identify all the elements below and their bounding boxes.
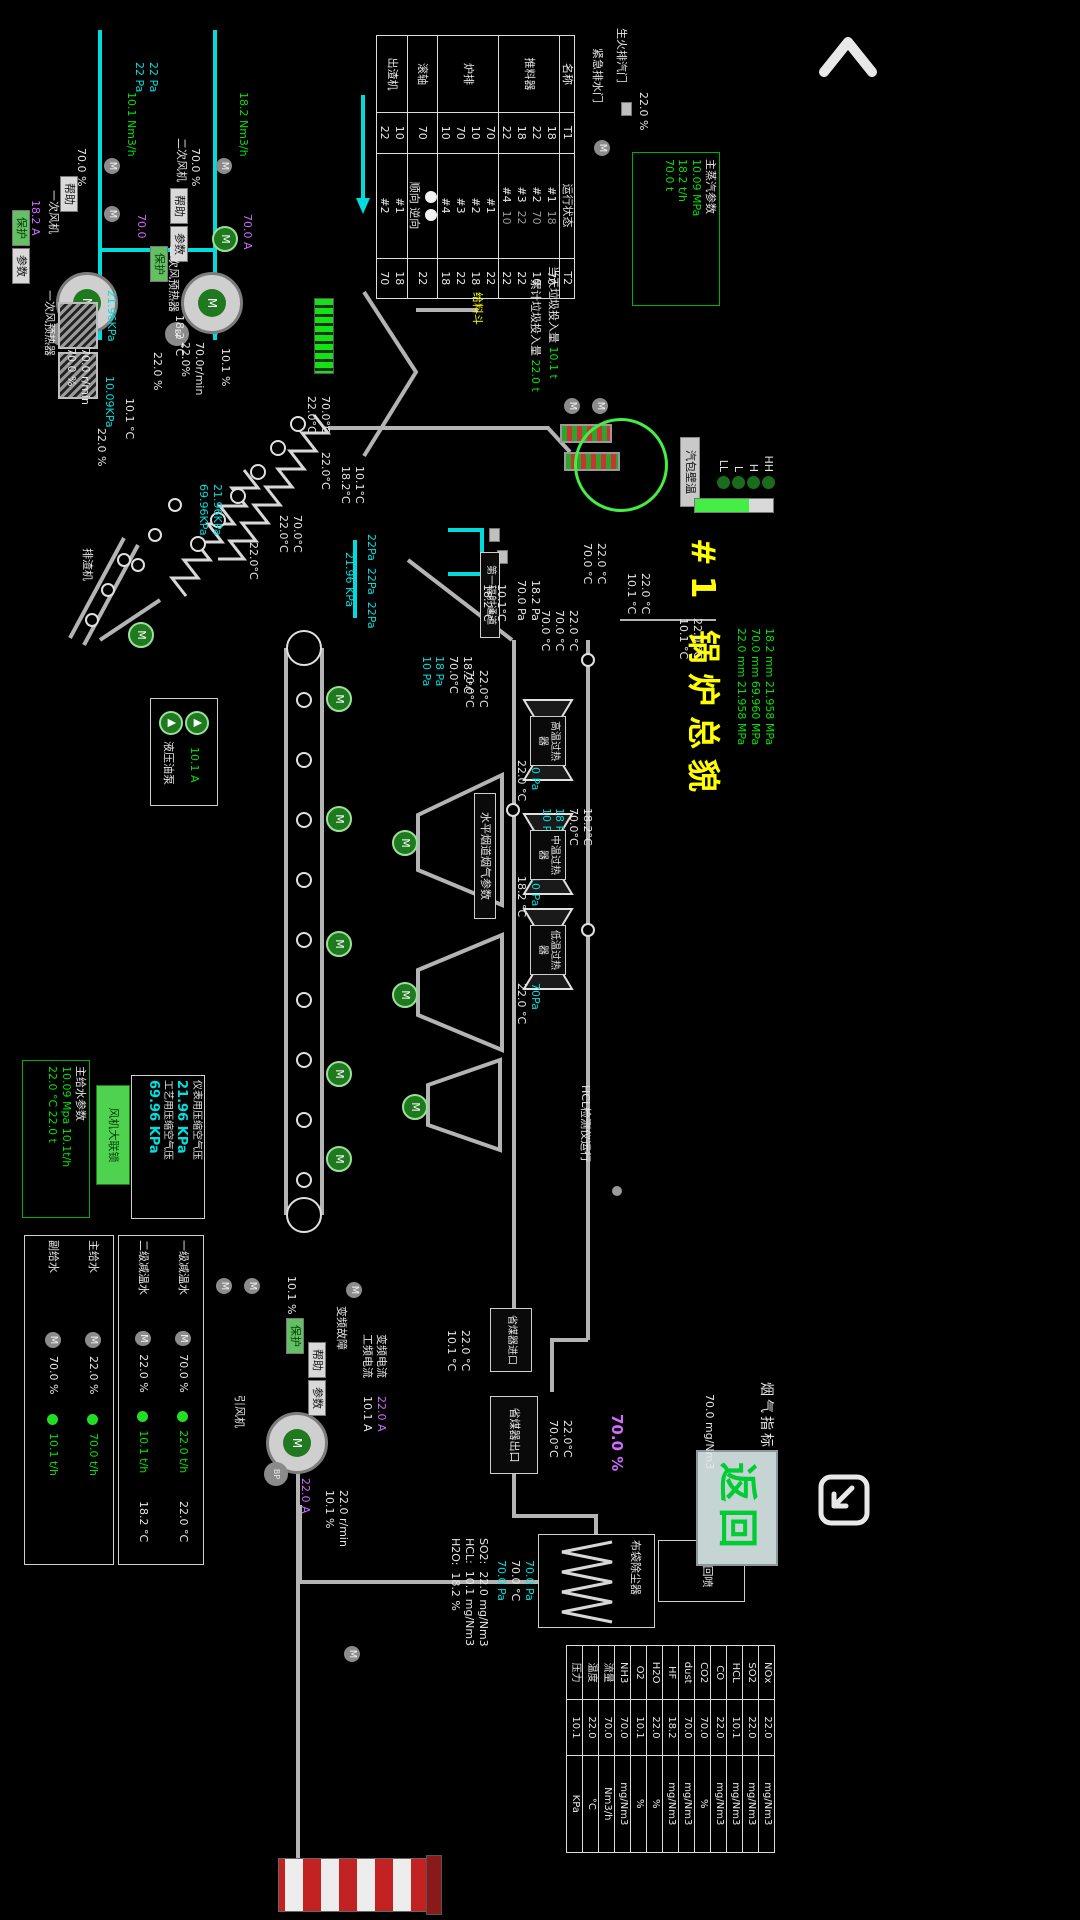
idfan-motor-valve-icon[interactable]: M (346, 1282, 362, 1298)
panel-temp: 18.2 °C (136, 1501, 150, 1564)
equip-header: T1 (560, 113, 575, 153)
duct-c1: 18.2°C70.0°C18 Pa10 Pa (419, 656, 474, 694)
run-indicator (178, 1411, 189, 1422)
grate-t4: 70.0°C22.0°C (277, 515, 305, 553)
drum-level-gauge (694, 498, 774, 513)
equip-status: #1#2#3#418702210 (499, 153, 560, 258)
drum-wall-temp-label: 汽包壁温 (680, 437, 700, 507)
equip-name: 出渣机 (376, 36, 407, 113)
equip-name: 滚轴 (407, 36, 438, 113)
feedwater-pressure: 10.09 Mpa (60, 1066, 73, 1124)
screenshot-root: #1 锅炉总貌 生火排汽门 紧急排水门 M 主蒸汽参数 10.09 MPa 18… (0, 0, 1080, 1920)
fluegas-name: HF (663, 1646, 679, 1700)
feeder-motor-2-icon[interactable]: M (564, 398, 580, 414)
main-steam-pressure: 10.09 MPa (690, 159, 704, 299)
fluegas-name: 温度 (583, 1646, 599, 1700)
fluegas-name: NOx (759, 1646, 775, 1700)
fluegas-value: 18.2 (663, 1700, 679, 1755)
fan2-amp: 70.0 A (240, 214, 254, 250)
fluegas-value: 22.0 (743, 1700, 759, 1755)
fluegas-name: HCL (727, 1646, 743, 1700)
panel-flow: 10.1 t/h (136, 1430, 150, 1501)
fluegas-title: 烟气指标 (757, 1382, 775, 1450)
hydraulic-pump-amp: 10.1 A (187, 747, 201, 783)
panel-flow: 10.1 t/h (46, 1433, 60, 1505)
fluegas-name: dust (679, 1646, 695, 1700)
fluegas-unit: mg/Nm3 (663, 1755, 679, 1852)
ph2-kpa: 21.96KPa (104, 290, 118, 342)
fluegas-row: 压力10.1KPa (567, 1646, 583, 1853)
economizer-outlet-label: 省煤器出口 (490, 1396, 538, 1474)
pass1-t3: 22.0 °C70.0 °C (581, 543, 609, 584)
eco-out-temps: 22.0°C70.0°C (547, 1420, 575, 1458)
fan1-pa: 22 Pa22 Pa (133, 62, 161, 92)
idfan-speed: 22.0 r/min10.1 % (323, 1490, 351, 1547)
run-indicator (48, 1414, 59, 1425)
feeder-motor-1-icon[interactable]: M (592, 398, 608, 414)
panel-row-label: 主给水 (86, 1236, 100, 1332)
param-button[interactable]: 参数 (12, 248, 30, 284)
bunker-level-indicator (314, 298, 334, 374)
panel-valve-pct: 70.0 % (46, 1356, 60, 1414)
idfan-inlet-valve2-icon[interactable]: M (216, 1278, 232, 1294)
slag-conveyor-motor-icon[interactable]: M (128, 622, 154, 648)
drum-level-HH: HH (761, 452, 776, 489)
panel-row-label: 一级减温水 (176, 1236, 190, 1331)
feed-hopper-label: 给料斗 (470, 292, 484, 325)
grate-t3: 10.1°C18.2°C (339, 466, 367, 504)
equip-name: 炉排 (438, 36, 499, 113)
desuperheater-panel: 一级减温水M70.0 %22.0 t/h22.0 °C二级减温水M22.0 %1… (118, 1235, 204, 1565)
idfan-currents: 22.0 A10.1 A (361, 1396, 389, 1432)
equip-header: T2 (560, 258, 575, 298)
fluegas-unit: °C (583, 1755, 599, 1852)
equip-header: 名称 (560, 36, 575, 113)
fluegas-unit: KPa (567, 1755, 583, 1852)
param-button[interactable]: 参数 (308, 1380, 326, 1416)
equip-t2: 70102222 (499, 258, 560, 298)
feedwater-total: 22.0 t (47, 1111, 60, 1143)
main-steam-flow: 18.2 t/h (676, 159, 690, 299)
chevron-up-icon[interactable] (812, 26, 884, 86)
fluegas-value: 22.0 (647, 1700, 663, 1755)
run-indicator (138, 1411, 149, 1422)
boiler-overview-stage: #1 锅炉总貌 生火排汽门 紧急排水门 M 主蒸汽参数 10.09 MPa 18… (0, 0, 800, 1920)
fluegas-unit: % (647, 1755, 663, 1852)
superheater-label-2: 中温过热器 (530, 830, 566, 880)
panel-temp: 22.0 °C (176, 1501, 190, 1564)
drum-level-L: L (731, 452, 746, 489)
idfan-cur-labels: 变频电流工频电流 (361, 1334, 389, 1378)
panel-valve-icon[interactable]: M (175, 1331, 191, 1347)
channel-r3: 70Pa22.0 °C (515, 983, 543, 1024)
fluegas-value: 70.0 (615, 1700, 631, 1755)
secondary-fan-label: 二次风机 (174, 138, 188, 182)
fluegas-value: 22.0 (583, 1700, 599, 1755)
pump-1-icon[interactable]: ▲ (185, 711, 209, 735)
pass1-t2: 22.0 °C10.1 °C (677, 618, 705, 659)
idfan-amp: 22.0 A (298, 1478, 312, 1514)
fluegas-value: 22.0 (711, 1700, 727, 1755)
equip-t1: 70 (407, 113, 438, 153)
fluegas-value: 70.0 (679, 1700, 695, 1755)
fluegas-name: NH3 (615, 1646, 631, 1700)
ph2-pct1: 10.1 % (218, 348, 232, 386)
idfan-fault: 变频故障 (334, 1306, 348, 1350)
panel-valve-icon[interactable]: M (85, 1332, 101, 1348)
fluegas-name: H2O (647, 1646, 663, 1700)
fluegas-value: 10.1 (631, 1700, 647, 1755)
panel-flow: 22.0 t/h (176, 1430, 190, 1501)
bag-readings: 70.0 Pa70.0 °C70.0 Pa (495, 1560, 536, 1601)
primary-preheater-label: 一次风预热器 (42, 290, 56, 356)
drum-level-LL: LL (716, 452, 731, 489)
fluegas-row: NOx22.0mg/Nm3 (759, 1646, 775, 1853)
run-indicator (88, 1414, 99, 1425)
drum-level-H: H (746, 452, 761, 489)
main-steam-total: 70.0 t (662, 159, 676, 299)
grate-t2: 22.0°C (318, 452, 332, 490)
feedwater-params-box: 主给水参数 10.09 Mpa 10.1t/h 22.0 °C 22.0 t (22, 1060, 90, 1218)
fluegas-value: 70.0 (695, 1700, 711, 1755)
grate-kpa: 21.96KPa69.96KPa (197, 484, 225, 536)
fluegas-value: 10.1 (727, 1700, 743, 1755)
main-steam-params-title: 主蒸汽参数 (703, 159, 717, 299)
ph1-kpa: 10.09KPa (102, 376, 116, 428)
superheater-label-1: 高温过热器 (530, 716, 566, 766)
chimney-cap (426, 1855, 442, 1915)
equipment-status-table: 名称T1运行状态T2推料器18221822#1#2#3#418702210701… (376, 35, 575, 299)
panel-flow: 70.0 t/h (86, 1433, 100, 1505)
grate-t1: 70.0°C22.0°C (305, 396, 333, 434)
ph2-pct2: 22.0 % (150, 352, 164, 390)
instrument-air-label: 仪表用压缩空气压 (190, 1080, 203, 1214)
superheater-label-3: 低温过热器 (530, 925, 566, 975)
secondary-preheater-label: 二次风预热器 (166, 246, 180, 312)
pass1-t1: 22.0 °C10.1 °C (625, 573, 653, 614)
panel-row: 二级减温水M22.0 %10.1 t/h18.2 °C (123, 1236, 163, 1564)
equip-t1: 1022 (376, 113, 407, 153)
panel-valve-icon[interactable]: M (135, 1331, 151, 1347)
emergency-drain-valve-icon[interactable]: M (594, 140, 610, 156)
steam-drum (574, 418, 668, 512)
idfan-bp-icon: BP (264, 1462, 288, 1486)
fluegas-value: 10.1 (567, 1700, 583, 1755)
panel-valve-pct: 70.0 % (176, 1354, 190, 1411)
fluegas-row: dust70.0mg/Nm3 (679, 1646, 695, 1853)
emergency-drain-valve-label: 紧急排水门 (590, 48, 604, 103)
secondary-preheater-icon (58, 302, 98, 349)
fan2-flow: 18.2 Nm3/h (236, 92, 250, 157)
hopper2-motor-icon[interactable]: M (392, 982, 418, 1008)
fluegas-row: CO22.0mg/Nm3 (711, 1646, 727, 1853)
equip-t2: 1870 (376, 258, 407, 298)
equip-t1: 18221822 (499, 113, 560, 153)
startup-steam-valve-icon[interactable] (621, 102, 632, 116)
fan1-pct: 70.0 % (74, 148, 88, 186)
fluegas-value: 70.0 (599, 1700, 615, 1755)
fan1-speed: 70.0 r/min70.0 % (65, 348, 93, 405)
fan2-pct: 70.0 % (188, 148, 202, 186)
fluegas-unit: mg/Nm3 (759, 1755, 775, 1852)
fluegas-unit: mg/Nm3 (743, 1755, 759, 1852)
equip-header: 运行状态 (560, 153, 575, 258)
panel-row: 副给水M70.0 %10.1 t/h (33, 1236, 73, 1564)
eco-o2-pct: 70.0 % (607, 1414, 626, 1471)
duct-pa1: 18.2 Pa70.0 Pa (515, 580, 543, 621)
drum-level-leds: HHHLLL (716, 452, 776, 489)
fan1-amp: 18.2 A (28, 200, 42, 236)
conveyor-motor-4-icon[interactable]: M (326, 1061, 352, 1087)
stack-gas: SO2: 22.0 mg/Nm3HCL: 10.1 mg/Nm3H2O: 18.… (449, 1538, 490, 1647)
equip-row: 滚轴70顺向 逆向22 (407, 36, 438, 299)
panel-row-label: 二级减温水 (136, 1236, 150, 1331)
fluegas-row: H2O22.0% (647, 1646, 663, 1853)
primary-fan-valve1-icon[interactable]: M (104, 158, 120, 174)
feedwater-params-title: 主给水参数 (73, 1066, 87, 1212)
fluegas-unit: mg/Nm3 (615, 1755, 631, 1852)
fluegas-row: 流量70.0Nm3/h (599, 1646, 615, 1853)
fluegas-row: SO222.0mg/Nm3 (743, 1646, 759, 1853)
fan1-flow: 10.1 Nm3/h (124, 92, 138, 157)
fan1-amp2: 70.0 (134, 214, 148, 239)
main-steam-params-box: 主蒸汽参数 10.09 MPa 18.2 t/h 70.0 t (632, 152, 720, 306)
conveyor-motor-2-icon[interactable]: M (326, 806, 352, 832)
help-button[interactable]: 帮助 (170, 188, 188, 224)
compressed-air-box: 仪表用压缩空气压 21.96 KPa 工艺用压缩空气压 69.96 KPa (131, 1075, 205, 1219)
conveyor-motor-3-icon[interactable]: M (326, 931, 352, 957)
panel-valve-pct: 22.0 % (86, 1356, 100, 1414)
hopper1-motor-icon[interactable]: M (392, 830, 418, 856)
secondary-fan-icon[interactable]: M (181, 272, 243, 334)
startup-valve-pct: 22.0 % (636, 92, 650, 130)
pass1-t6: 10.1°C18.2°C (481, 584, 509, 622)
secondary-fan-damper-motor-icon[interactable]: M (212, 226, 238, 252)
overlay-window-icon[interactable] (816, 1472, 872, 1528)
idfan-label: 引风机 (232, 1395, 246, 1428)
panel-row: 一级减温水M70.0 %22.0 t/h22.0 °C (163, 1236, 203, 1564)
horizontal-flue-params-label: 水平烟道烟气参数 (474, 793, 496, 919)
hydraulic-pump-label: 液压油泵 (161, 741, 175, 785)
panel-row: 主给水M22.0 %70.0 t/h (73, 1236, 113, 1564)
feedwater-temp: 22.0 °C (47, 1066, 60, 1107)
fluegas-row: 温度22.0°C (583, 1646, 599, 1853)
fluegas-unit: % (695, 1755, 711, 1852)
drum-mm: 18.2 mm 21.958 MPa70.0 mm 69.960 MPa22.0… (735, 628, 776, 745)
fluegas-row: O210.1% (631, 1646, 647, 1853)
primary-fan-label: 一次风机 (46, 190, 60, 234)
equip-t1: 70107010 (438, 113, 499, 153)
fluegas-value: 22.0 (759, 1700, 775, 1755)
fluegas-unit: mg/Nm3 (711, 1755, 727, 1852)
process-air-value: 69.96 KPa (145, 1080, 161, 1214)
duct-valve-icon[interactable]: M (344, 1646, 360, 1662)
steam-pa: 22Pa 22Pa 22Pa (364, 534, 378, 629)
fluegas-unit: % (631, 1755, 647, 1852)
equip-header-row: 名称T1运行状态T2 (560, 36, 575, 299)
equip-name: 推料器 (499, 36, 560, 113)
fluegas-unit: mg/Nm3 (679, 1755, 695, 1852)
equip-row: 出渣机1022#1#21870 (376, 36, 407, 299)
conveyor-motor-5-icon[interactable]: M (326, 1146, 352, 1172)
fluegas-unit: Nm3/h (599, 1755, 615, 1852)
hcl-analyzer-dot (612, 1186, 622, 1196)
primary-fan-valve2-icon[interactable]: M (104, 206, 120, 222)
grate-t5: 22.0°C (246, 542, 260, 580)
fluegas-row: HCL10.1mg/Nm3 (727, 1646, 743, 1853)
instrument-air-value: 21.96 KPa (173, 1080, 189, 1214)
fluegas-unit: mg/Nm3 (727, 1755, 743, 1852)
slag-remover-label: 排渣机 (80, 548, 94, 581)
chimney (278, 1858, 430, 1912)
pass1-t4: 22.0 °C70.0 °C70.0 °C (539, 610, 580, 651)
hcl-value: 70.0 mg/Nm3 (702, 1394, 716, 1469)
equip-t2: 22182218 (438, 258, 499, 298)
protect-button[interactable]: 保护 (286, 1318, 304, 1354)
fluegas-name: CO2 (695, 1646, 711, 1700)
fluegas-row: NH370.0mg/Nm3 (615, 1646, 631, 1853)
help-button[interactable]: 帮助 (308, 1342, 326, 1378)
fluegas-name: CO (711, 1646, 727, 1700)
fluegas-table: NOx22.0mg/Nm3SO222.0mg/Nm3HCL10.1mg/Nm3C… (566, 1645, 775, 1853)
eco-in-temps: 22.0 °C10.1 °C (445, 1330, 473, 1371)
channel-r2: 10 Pa18.2 °C (515, 876, 543, 917)
panel-valve-icon[interactable]: M (45, 1332, 61, 1348)
startup-steam-valve-label: 生火排汽门 (614, 28, 628, 83)
fan-interlock-button[interactable]: 风机大联锁 (96, 1085, 130, 1185)
panel-row-label: 副给水 (46, 1236, 60, 1332)
equip-row: 炉排70107010#1#2#3#422182218 (438, 36, 499, 299)
fluegas-name: 流量 (599, 1646, 615, 1700)
fluegas-row: CO270.0% (695, 1646, 711, 1853)
process-air-label: 工艺用压缩空气压 (161, 1080, 174, 1214)
hcl-analyzer-label: HCL检测仪运行 (578, 1085, 592, 1162)
fluegas-name: O2 (631, 1646, 647, 1700)
pump-2-icon[interactable]: ▲ (159, 711, 183, 735)
bag-filter-label: 布袋除尘器 (628, 1540, 642, 1595)
ph2-temp: 18.2 °C (172, 315, 186, 356)
equip-status: #1#2#3#4 (438, 153, 499, 258)
feedwater-panel: 主给水M22.0 %70.0 t/h副给水M70.0 %10.1 t/h (24, 1235, 114, 1565)
idfan-pct: 10.1 % (284, 1276, 298, 1314)
ph1-pct: 22.0 % (94, 428, 108, 466)
idfan-inlet-valve1-icon[interactable]: M (244, 1278, 260, 1294)
fluegas-name: 压力 (567, 1646, 583, 1700)
conveyor-motor-1-icon[interactable]: M (326, 686, 352, 712)
equip-status: 顺向 逆向 (407, 153, 438, 258)
equip-row: 推料器18221822#1#2#3#41870221070102222 (499, 36, 560, 299)
equip-status: #1#2 (376, 153, 407, 258)
economizer-inlet-label: 省煤器进口 (490, 1308, 532, 1372)
secondary-fan-valve-icon[interactable]: M (216, 158, 232, 174)
safety-valve-1-icon[interactable] (489, 528, 500, 542)
hydraulic-pump-box: ▲ ▲ 10.1 A 液压油泵 (150, 698, 218, 806)
hopper3-motor-icon[interactable]: M (402, 1094, 428, 1120)
channel-r1: 70 Pa22.0 °C (515, 760, 543, 801)
feedwater-flow: 10.1t/h (60, 1128, 73, 1167)
fluegas-row: HF18.2mg/Nm3 (663, 1646, 679, 1853)
steam-kpa: 21.96 KPa (342, 552, 356, 607)
equip-t2: 22 (407, 258, 438, 298)
android-navbar (800, 0, 1080, 1920)
ph1-temp: 10.1 °C (122, 398, 136, 439)
panel-valve-pct: 22.0 % (136, 1354, 150, 1411)
fluegas-name: SO2 (743, 1646, 759, 1700)
page-title: #1 锅炉总貌 (683, 538, 724, 802)
